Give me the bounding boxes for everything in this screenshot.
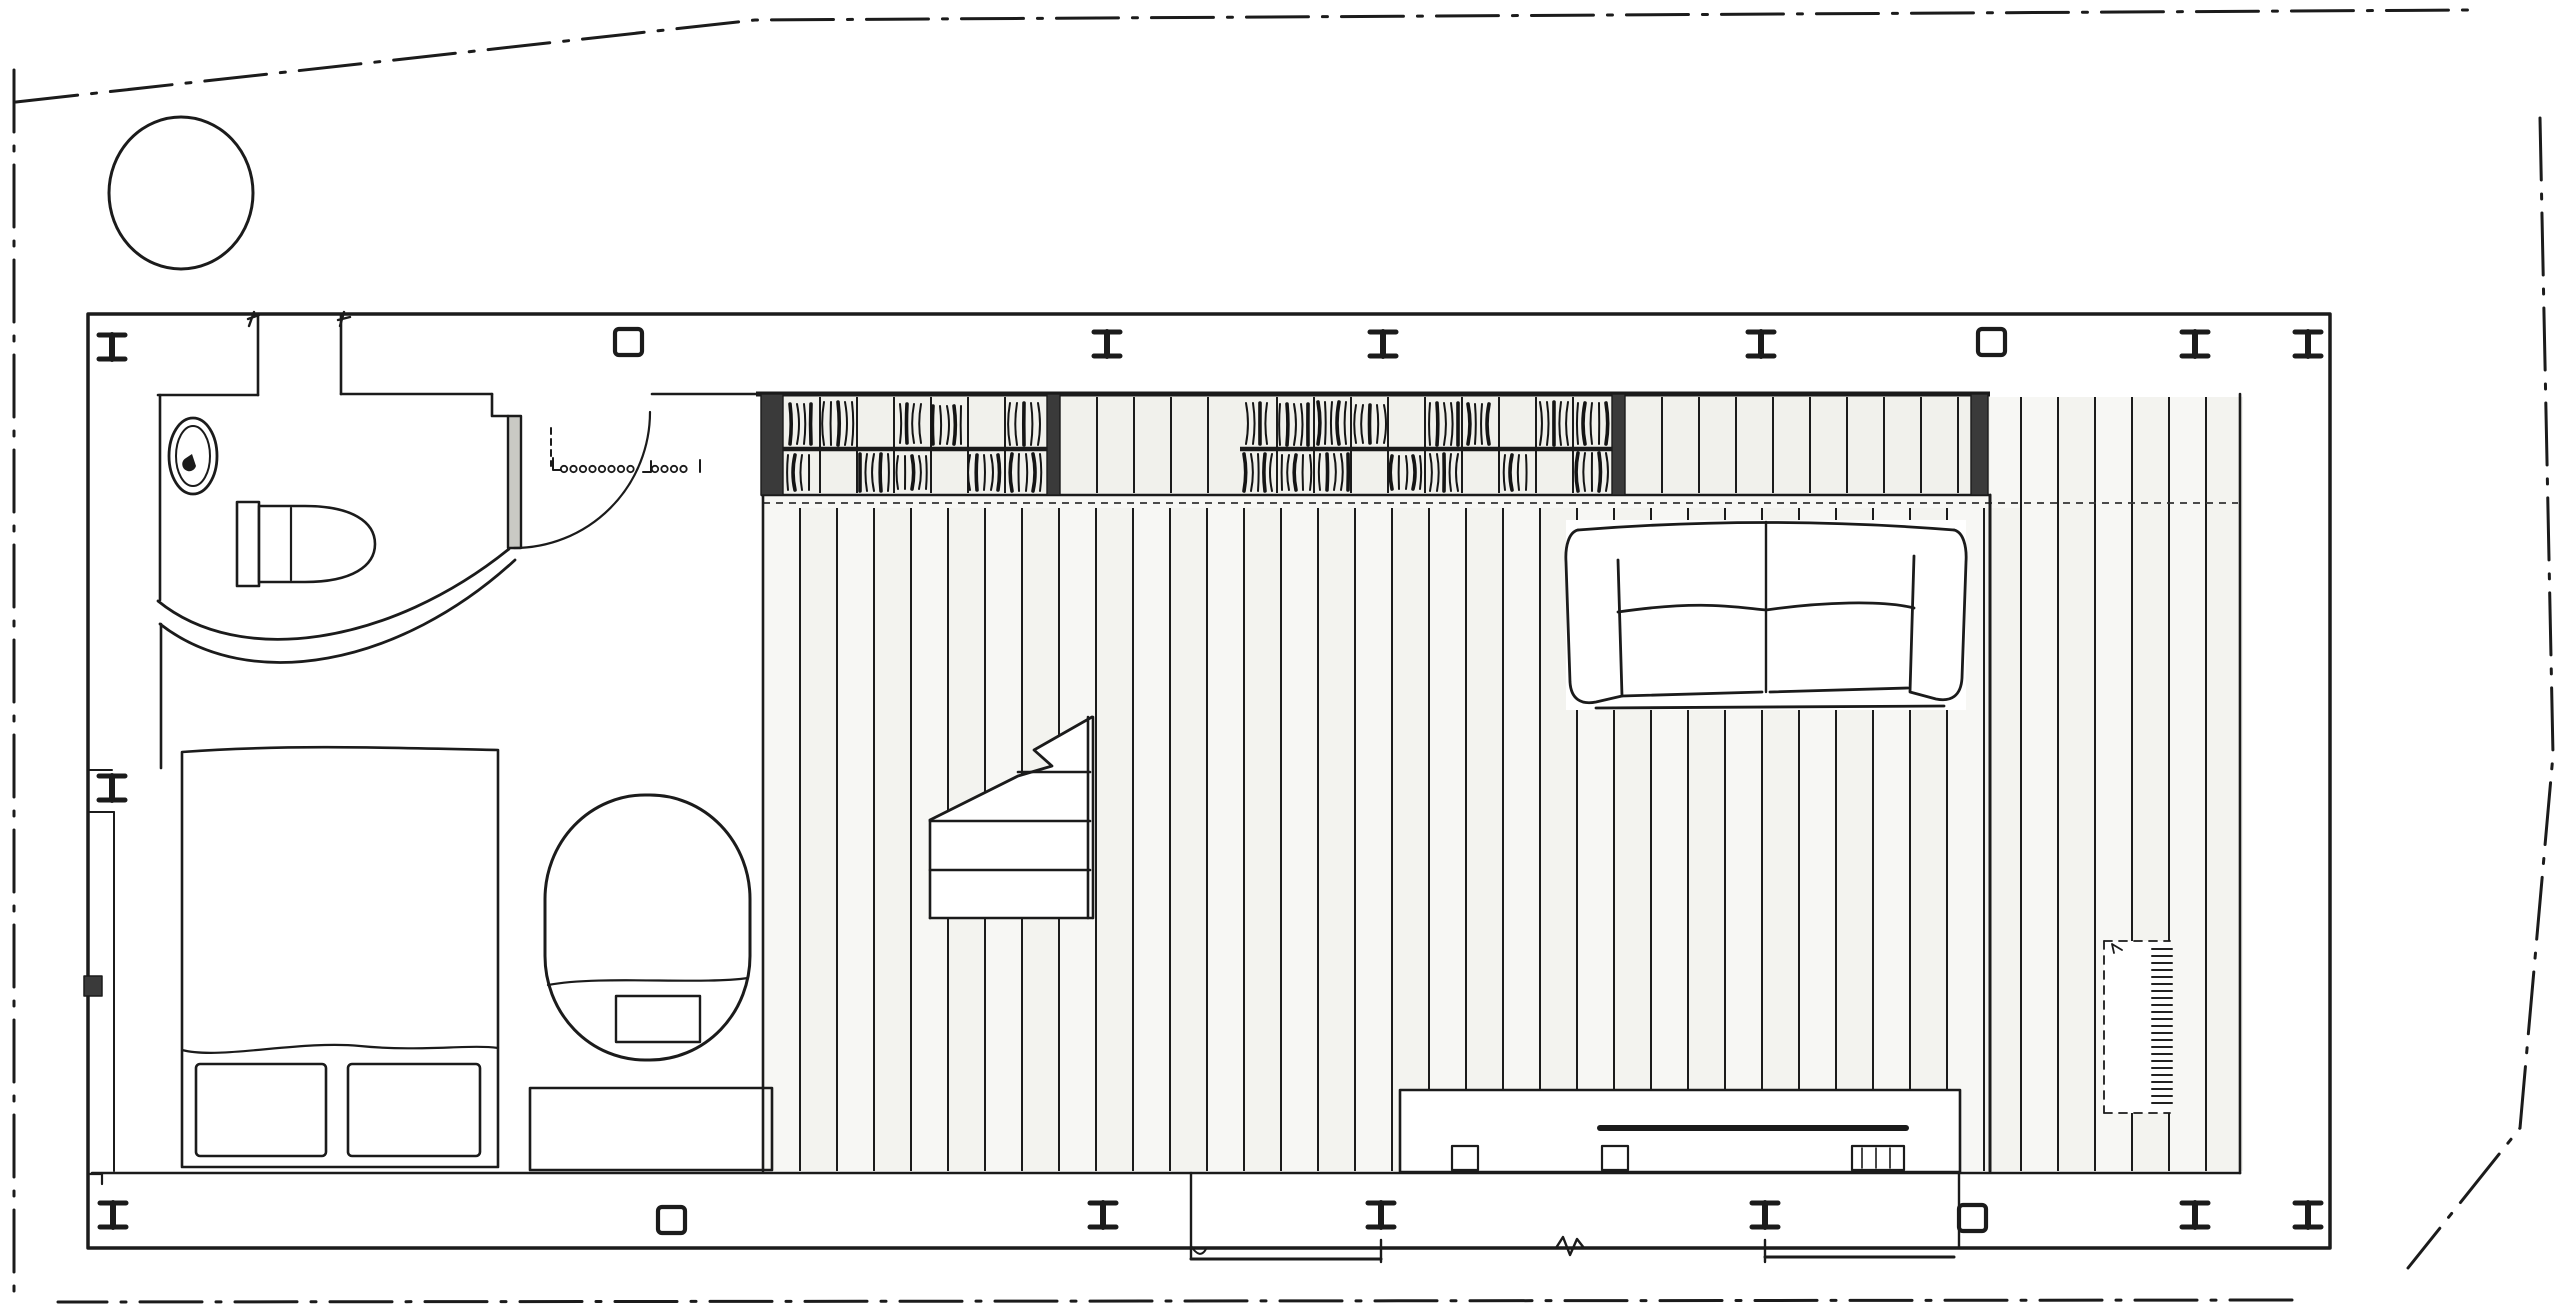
threshold-dot — [652, 466, 658, 472]
book-spine — [1475, 404, 1476, 444]
book-spine — [1244, 454, 1246, 491]
i-beam-column-top — [1370, 332, 1396, 356]
i-beam-column-bottom — [1368, 1203, 1394, 1227]
book-spine — [926, 456, 927, 489]
square-column-bottom — [1959, 1205, 1986, 1231]
threshold-dot — [627, 466, 633, 472]
book-spine — [998, 455, 999, 490]
wall-zigzag-break — [1556, 1237, 1584, 1255]
deck-plank-lines — [763, 397, 2243, 1171]
threshold-dot — [599, 466, 605, 472]
shelf-end-cap — [1612, 394, 1625, 495]
i-beam-column-bottom — [1752, 1203, 1778, 1227]
book-spine — [1390, 456, 1392, 489]
plank-strip — [1244, 508, 1281, 1171]
toilet-bowl — [259, 506, 375, 582]
boundary-segment-1 — [16, 10, 2468, 102]
i-beam-column-top — [2182, 332, 2208, 356]
sideboard-foot-2 — [1602, 1146, 1628, 1170]
floor-plan-canvas — [0, 0, 2560, 1308]
book-spine — [787, 455, 788, 490]
book-spine — [1468, 404, 1470, 444]
book-spine — [1437, 403, 1438, 445]
threshold-bracket-left — [553, 458, 561, 470]
i-beam-column-top — [99, 335, 125, 359]
i-beam-column-top — [1094, 332, 1120, 356]
book-spine — [1287, 404, 1288, 445]
threshold-dot — [570, 466, 576, 472]
plank-strip — [1466, 508, 1503, 1171]
left-wall-bump — [84, 976, 102, 996]
plank-strip — [1318, 508, 1355, 1171]
book-spine — [1413, 456, 1415, 489]
book-spine — [1325, 402, 1326, 444]
plank-strip — [2058, 397, 2095, 1171]
threshold-dot — [661, 466, 667, 472]
book-spine — [1369, 405, 1370, 443]
sofa — [1566, 520, 1966, 710]
oval-tub-step — [616, 996, 700, 1042]
book-spine — [880, 454, 881, 491]
tree-circle-symbol — [109, 117, 253, 269]
shelf-end-cap — [761, 394, 783, 495]
book-spine — [954, 406, 955, 444]
corner-tick-bottom-left — [88, 1174, 102, 1184]
threshold-dot — [561, 466, 567, 472]
book-spine — [1577, 403, 1578, 444]
i-beam-column-left — [99, 776, 125, 800]
sideboard-foot-3 — [1852, 1146, 1904, 1170]
i-beam-column-bottom — [1090, 1203, 1116, 1227]
book-spine — [1327, 454, 1328, 490]
pillow-left — [196, 1064, 326, 1156]
plank-strip — [1170, 508, 1207, 1171]
book-spine — [888, 454, 889, 491]
bathroom — [158, 412, 700, 662]
floor-plan-page — [0, 0, 2560, 1308]
door-jamb — [492, 394, 508, 416]
i-beam-column-bottom — [100, 1203, 126, 1227]
book-spine — [1526, 455, 1527, 490]
book-spine — [1576, 453, 1578, 491]
pillow-right — [348, 1064, 480, 1156]
deck-mat — [2104, 941, 2172, 1113]
threshold-dot — [680, 466, 686, 472]
threshold-dot — [618, 466, 624, 472]
book-spine — [1258, 454, 1259, 491]
door-threshold-dots — [551, 428, 700, 472]
book-spine — [1583, 403, 1585, 444]
book-spine — [1487, 404, 1489, 444]
book-spine — [1319, 454, 1320, 490]
book-spine — [1429, 403, 1430, 445]
sideboard-foot-1 — [1452, 1146, 1478, 1170]
toilet-cistern — [237, 502, 259, 586]
book-spine — [906, 404, 907, 443]
square-column-bottom — [658, 1207, 685, 1233]
book-spine — [1331, 402, 1332, 444]
book-spine — [1337, 402, 1339, 444]
oval-tub — [545, 795, 750, 1060]
book-spine — [1599, 453, 1600, 491]
shelf-end-cap — [1971, 394, 1988, 495]
threshold-dot — [671, 466, 677, 472]
book-spine — [932, 406, 933, 444]
book-spine — [1481, 404, 1482, 444]
plank-strip — [2206, 397, 2243, 1171]
book-spine — [1420, 456, 1421, 489]
book-spine — [984, 455, 985, 490]
shelf-end-cap — [1047, 394, 1060, 495]
boundary-segment-3 — [58, 1300, 2292, 1302]
plank-strip — [800, 508, 837, 1171]
book-spine — [1318, 402, 1320, 444]
book-spine — [790, 404, 791, 444]
i-beam-column-top — [1748, 332, 1774, 356]
book-spine — [976, 455, 977, 490]
threshold-bracket-mid — [643, 461, 651, 472]
book-spine — [1606, 403, 1608, 444]
square-column-top — [1978, 329, 2005, 355]
book-spine — [793, 455, 795, 490]
book-spine — [1264, 454, 1265, 491]
book-spine — [1033, 454, 1035, 491]
deck-sideboard — [1400, 1090, 1960, 1172]
door-leaf — [508, 416, 521, 548]
door-swing-arc — [514, 412, 650, 548]
book-spine — [838, 402, 839, 445]
plank-strip — [874, 508, 911, 1171]
shelf-band — [761, 394, 1990, 495]
threshold-dot — [580, 466, 586, 472]
plank-strip — [1392, 508, 1429, 1171]
book-spine — [1010, 454, 1012, 491]
book-spine — [940, 406, 941, 444]
book-spine — [912, 456, 914, 489]
square-column-top — [615, 329, 642, 355]
book-spine — [1510, 455, 1512, 490]
book-spine — [1294, 455, 1296, 490]
i-beam-column-bottom — [2182, 1203, 2208, 1227]
bed — [182, 747, 498, 1167]
threshold-dot — [589, 466, 595, 472]
boundary-segment-2 — [2408, 118, 2553, 1268]
threshold-dot — [608, 466, 614, 472]
plank-strip — [1096, 508, 1133, 1171]
i-beam-column-bottom — [2295, 1203, 2321, 1227]
book-spine — [1279, 404, 1280, 445]
bedroom-bench — [530, 1088, 772, 1170]
i-beam-column-top — [2295, 332, 2321, 356]
